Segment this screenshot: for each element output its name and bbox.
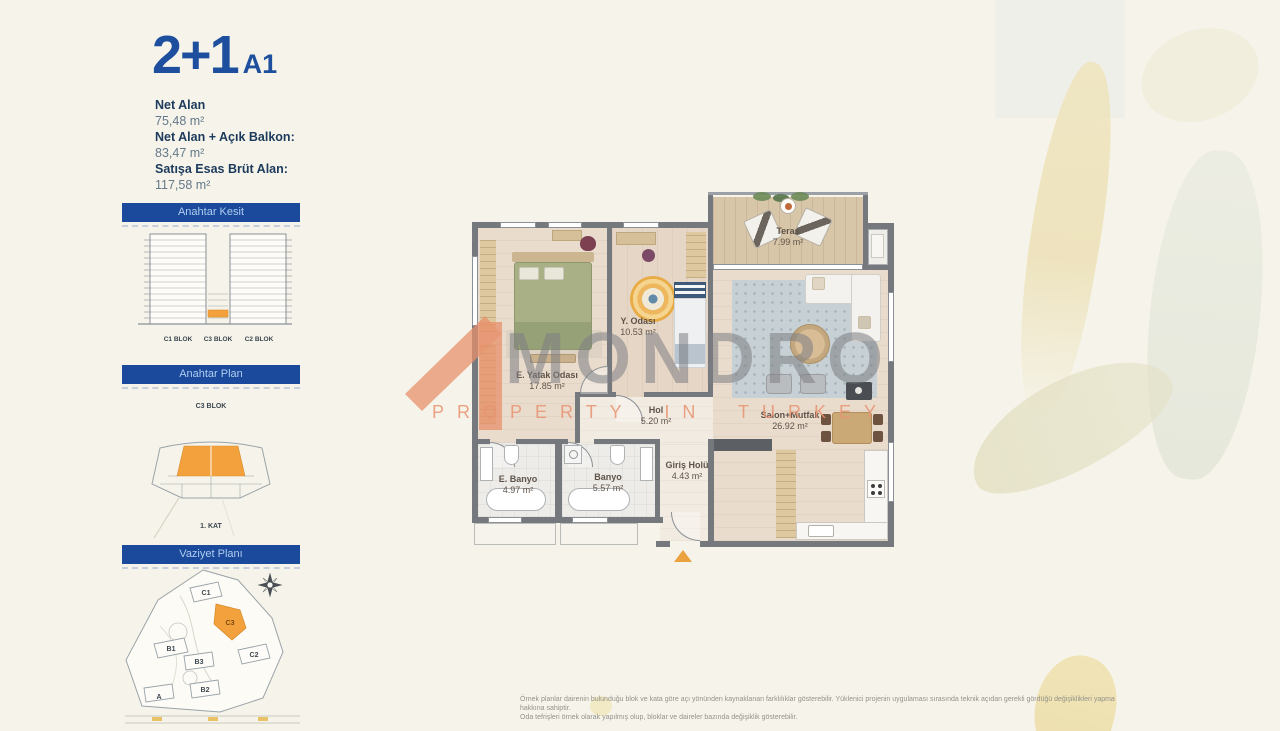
unit-variant: A1 xyxy=(243,49,278,79)
room-label-hall: Hol5.20 m² xyxy=(641,405,672,427)
wall xyxy=(863,265,894,270)
room-label-terrace: Teras7.99 m² xyxy=(773,226,804,248)
dining-chair xyxy=(821,414,831,425)
section-header-key-plan: Anahtar Plan xyxy=(122,365,300,384)
disclaimer: Örnek planlar dairenin bulunduğu blok ve… xyxy=(520,695,1120,722)
niche-unit xyxy=(871,234,884,258)
room-label-master-bedroom: E. Yatak Odası17.85 m² xyxy=(516,370,578,392)
site-plan-diagram: C1 C3 C2 B1 B3 B2 A xyxy=(120,566,305,731)
key-plan-block-label: C3 BLOK xyxy=(196,403,227,410)
area-summary: Net Alan 75,48 m² Net Alan + Açık Balkon… xyxy=(155,97,305,193)
window xyxy=(548,222,582,228)
dining-chair xyxy=(873,431,883,442)
room-label-master-bath: E. Banyo4.97 m² xyxy=(499,474,538,496)
plant-icon xyxy=(753,192,771,201)
site-label-b2: B2 xyxy=(201,687,210,694)
area-value: 117,58 m² xyxy=(155,177,305,193)
bed-blanket xyxy=(515,322,591,349)
wardrobe xyxy=(686,232,706,278)
key-section-diagram: C1 BLOK C3 BLOK C2 BLOK xyxy=(122,226,300,358)
dining-chair xyxy=(873,414,883,425)
toilet xyxy=(504,445,519,465)
window xyxy=(472,256,478,326)
section-header-site-plan: Vaziyet Planı xyxy=(122,545,300,564)
site-label-c3: C3 xyxy=(226,620,235,627)
area-label: Satışa Esas Brüt Alan: xyxy=(155,161,305,177)
desk xyxy=(616,232,656,245)
disclaimer-line2: Oda tefrişleri örnek olarak yapılmış olu… xyxy=(520,713,1120,722)
key-plan-diagram: C3 BLOK 1. KAT xyxy=(122,390,300,540)
wardrobe xyxy=(480,344,496,424)
bed-bench xyxy=(530,354,576,363)
terrace-table xyxy=(780,198,796,214)
room-label-bedroom: Y. Odası10.53 m² xyxy=(620,316,656,338)
planter-strip xyxy=(560,523,638,545)
dresser xyxy=(552,230,582,241)
bed-pillow xyxy=(519,267,539,280)
window xyxy=(572,517,608,523)
area-value: 75,48 m² xyxy=(155,113,305,129)
site-label-c1: C1 xyxy=(202,590,211,597)
wall xyxy=(700,541,894,547)
wall xyxy=(656,541,670,547)
watercolor-leaf-olive xyxy=(952,334,1189,517)
compass-icon xyxy=(259,574,281,596)
disclaimer-line1: Örnek planlar dairenin bulunduğu blok ve… xyxy=(520,695,1120,713)
single-bed-blanket xyxy=(675,344,705,364)
cooktop-icon xyxy=(867,480,885,498)
armchair xyxy=(800,374,826,394)
unit-type: 2+1 xyxy=(152,25,238,85)
site-label-c2: C2 xyxy=(250,652,259,659)
dining-table xyxy=(832,412,872,444)
unit-title: 2+1A1 xyxy=(152,24,277,86)
wall xyxy=(575,397,580,443)
vanity-chair xyxy=(580,236,596,251)
wall xyxy=(708,222,713,397)
toilet xyxy=(610,445,625,465)
site-label-b1: B1 xyxy=(167,646,176,653)
watercolor-leaf-pale xyxy=(1128,12,1272,138)
coffee-table xyxy=(790,324,830,364)
site-label-b3: B3 xyxy=(195,659,204,666)
wall xyxy=(708,439,714,547)
wardrobe xyxy=(480,240,496,332)
bed-headboard xyxy=(512,252,594,262)
watercolor-leaf-grey xyxy=(1133,145,1277,485)
entrance-marker-icon xyxy=(674,550,692,562)
room-label-living-kitchen: Salon+Mutfak26.92 m² xyxy=(761,410,820,432)
block-label-c1: C1 BLOK xyxy=(164,336,193,343)
page: 2+1A1 Net Alan 75,48 m² Net Alan + Açık … xyxy=(0,0,1280,731)
block-label-c3: C3 BLOK xyxy=(204,336,233,343)
wall xyxy=(555,443,562,517)
window xyxy=(500,222,536,228)
washbasin xyxy=(640,447,653,481)
watercolor-stem xyxy=(999,57,1130,424)
sofa xyxy=(851,274,881,342)
area-value: 83,47 m² xyxy=(155,145,305,161)
wall xyxy=(863,192,868,270)
armchair xyxy=(766,374,792,394)
washbasin xyxy=(480,447,493,481)
window xyxy=(888,292,894,362)
wall xyxy=(655,443,660,517)
watercolor-wash xyxy=(995,0,1125,118)
area-label: Net Alan xyxy=(155,97,305,113)
floor-plan: E. Yatak Odası17.85 m² Y. Odası10.53 m² … xyxy=(460,192,900,560)
planter-strip xyxy=(474,523,556,545)
room-label-entry-hall: Giriş Holü4.43 m² xyxy=(665,460,708,482)
bed-pillow xyxy=(544,267,564,280)
window xyxy=(888,442,894,502)
pillow xyxy=(858,316,871,329)
room-label-bath: Banyo5.57 m² xyxy=(593,472,624,494)
tall-cabinet xyxy=(776,450,796,538)
highlighted-floor xyxy=(208,310,228,317)
wall xyxy=(594,439,660,444)
wall xyxy=(472,439,490,444)
single-bed-pillow xyxy=(674,282,706,298)
block-label-c2: C2 BLOK xyxy=(245,336,274,343)
wall xyxy=(644,392,713,397)
area-label: Net Alan + Açık Balkon: xyxy=(155,129,305,145)
site-label-a: A xyxy=(156,694,161,701)
washing-machine xyxy=(564,445,582,464)
tv-unit xyxy=(846,382,872,400)
dining-chair xyxy=(821,431,831,442)
key-plan-floor-label: 1. KAT xyxy=(200,523,222,530)
sliding-door-window xyxy=(713,264,863,270)
wall-thick xyxy=(714,439,772,451)
window xyxy=(623,222,659,228)
desk-chair xyxy=(642,249,655,262)
window xyxy=(488,517,522,523)
pillow xyxy=(812,277,825,290)
sink-icon xyxy=(808,525,834,537)
section-header-key-section: Anahtar Kesit xyxy=(122,203,300,222)
terrace-parapet xyxy=(708,192,868,195)
